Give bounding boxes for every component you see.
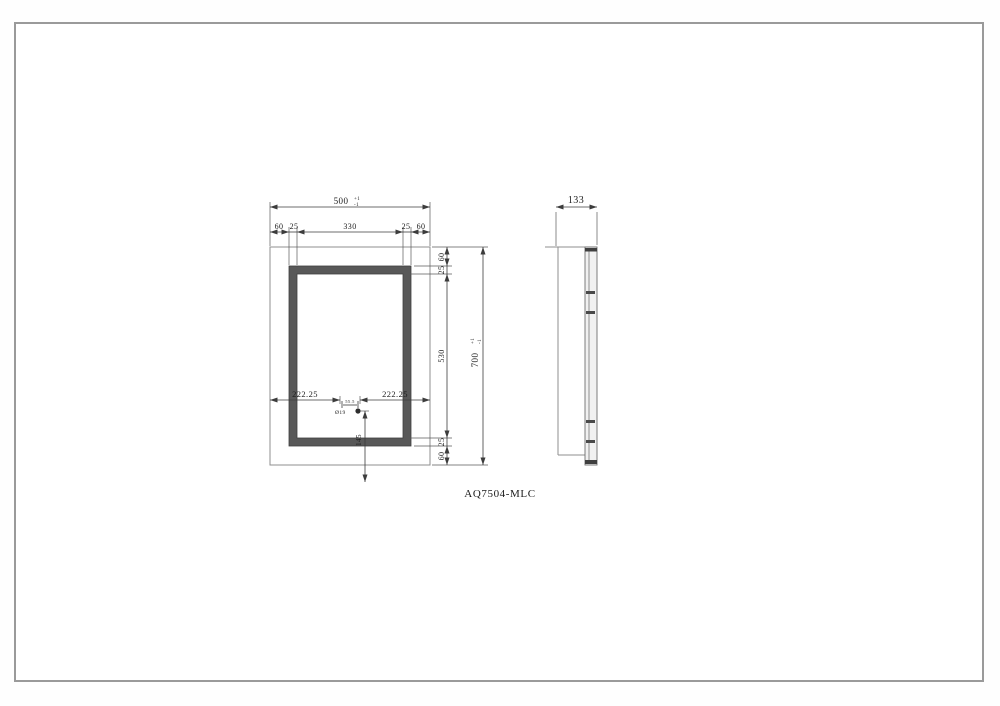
mount-hook-lower-2 — [586, 440, 595, 443]
dim-label-inner-height: 530 — [437, 349, 446, 362]
dim-label-v25-bottom: 25 — [437, 438, 446, 447]
technical-drawing: 500 +1 -1 60 25 330 25 60 — [0, 0, 1000, 706]
dim-label-depth: 133 — [568, 195, 584, 206]
led-frame-band — [289, 266, 411, 446]
side-view: 133 — [545, 195, 597, 465]
dim-overall-width: 500 +1 -1 — [270, 196, 430, 246]
dim-label-v60-top: 60 — [437, 253, 446, 262]
dim-label-overall-width: 500 — [334, 196, 349, 206]
dim-label-sensor-width: 55.5 — [345, 399, 355, 404]
mount-clip-bottom — [585, 460, 597, 464]
dim-tol-plus-height: +1 — [471, 338, 476, 344]
dim-top-chain: 60 25 330 25 60 — [270, 222, 430, 265]
dim-depth: 133 — [556, 195, 597, 246]
dim-label-overall-height: 700 — [470, 353, 480, 368]
dim-label-chain-60-right: 60 — [417, 222, 426, 231]
dim-label-sensor-height: 145 — [355, 434, 363, 446]
drawing-sheet: 500 +1 -1 60 25 330 25 60 — [0, 0, 1000, 706]
dim-tol-plus-width: +1 — [354, 197, 360, 202]
front-view: 500 +1 -1 60 25 330 25 60 — [270, 196, 488, 482]
dim-right-chain: 60 25 530 25 60 — [406, 247, 452, 465]
dim-label-chain-60-left: 60 — [275, 222, 284, 231]
side-mirror-profile — [585, 247, 597, 465]
dim-label-left-to-sensor: 222.25 — [292, 389, 318, 399]
mount-hook-lower-1 — [586, 420, 595, 423]
mount-hook-upper-1 — [586, 291, 595, 294]
mount-clip-top — [585, 248, 597, 252]
sensor-diameter-label: Ø19 — [335, 410, 346, 416]
dim-label-right-to-sensor: 222.25 — [382, 389, 408, 399]
dim-label-chain-330: 330 — [343, 222, 356, 231]
touch-sensor-dot — [355, 408, 360, 413]
dim-label-chain-25-left: 25 — [290, 222, 299, 231]
dim-label-chain-25-right: 25 — [402, 222, 411, 231]
mount-hook-upper-2 — [586, 311, 595, 314]
part-number-label: AQ7504-MLC — [464, 488, 535, 500]
dim-label-v25-top: 25 — [437, 266, 446, 275]
dim-label-v60-bottom: 60 — [437, 452, 446, 461]
dim-tol-minus-height: -1 — [478, 339, 483, 344]
dim-tol-minus-width: -1 — [354, 203, 359, 208]
